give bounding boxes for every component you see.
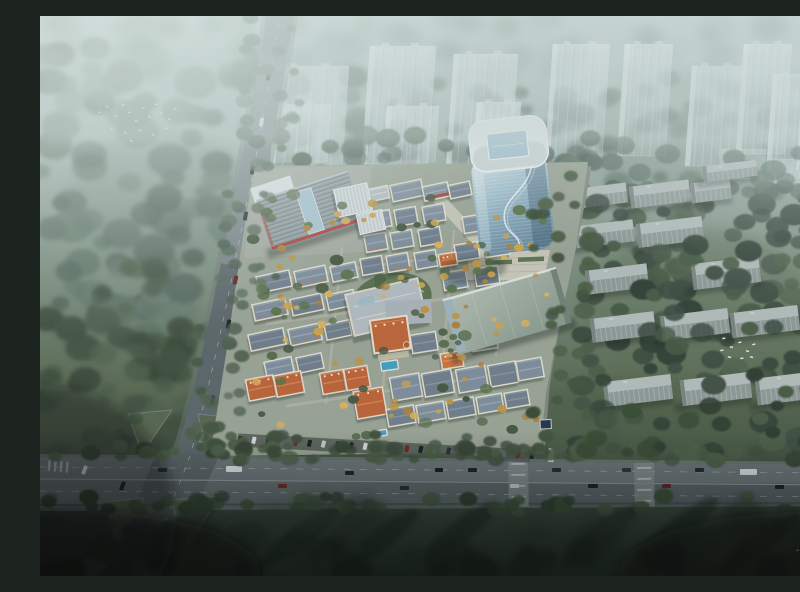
masterplan-aerial-rendering — [40, 16, 800, 576]
atmosphere-overlay — [40, 16, 800, 576]
aerial-masterplan-render: Aerial dusk rendering of a mixed-use dev… — [40, 16, 800, 576]
